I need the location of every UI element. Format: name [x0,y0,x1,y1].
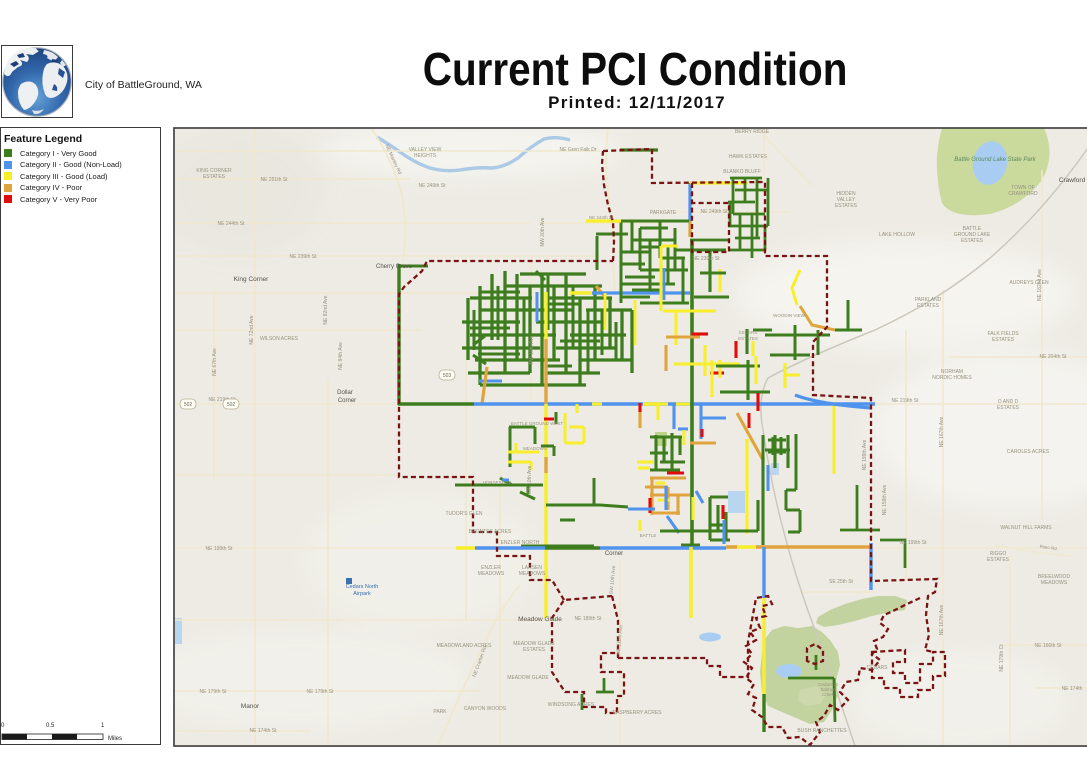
svg-text:Cherry Grove: Cherry Grove [376,264,413,270]
svg-text:ENZLER NORTH: ENZLER NORTH [501,540,540,546]
svg-text:NE 244th St: NE 244th St [589,215,614,220]
svg-text:ESTATES: ESTATES [738,336,758,341]
svg-text:NE 179th St: NE 179th St [200,689,228,695]
svg-text:NE 251th St: NE 251th St [261,177,289,183]
svg-text:NE 199th St: NE 199th St [206,546,234,552]
svg-text:NE 179th Ct: NE 179th Ct [999,644,1005,672]
svg-text:NE 159th Ave: NE 159th Ave [882,485,888,516]
svg-text:Meadow Glade: Meadow Glade [518,616,562,623]
svg-text:NE 249th St: NE 249th St [701,209,729,215]
svg-text:CAROLES ACRES: CAROLES ACRES [1007,449,1050,455]
svg-text:CEDARS: CEDARS [739,330,758,335]
svg-text:NE 182nd Ave: NE 182nd Ave [1037,269,1043,301]
svg-text:NE 67th Ave: NE 67th Ave [212,348,218,376]
svg-text:502: 502 [184,402,193,408]
svg-text:MEADOW GLADE: MEADOW GLADE [507,675,549,681]
svg-text:NE Gren Falk Dr: NE Gren Falk Dr [560,147,597,153]
svg-text:Miles: Miles [108,736,122,742]
svg-text:NE 244th St: NE 244th St [218,221,246,227]
svg-text:0.5: 0.5 [46,723,55,729]
svg-text:BLANKO BLUFF: BLANKO BLUFF [723,169,761,175]
svg-text:Airpark: Airpark [353,591,371,597]
svg-text:Manor: Manor [241,703,260,710]
svg-text:NE 82nd Ave: NE 82nd Ave [323,295,329,324]
svg-text:1: 1 [101,723,105,729]
svg-text:ESTATES: ESTATES [992,337,1015,343]
svg-text:CRAWFORD: CRAWFORD [1008,191,1038,197]
svg-text:NE 199th Ave: NE 199th Ave [862,440,868,471]
svg-text:LAKE HOLLOW: LAKE HOLLOW [879,232,915,238]
svg-text:PARKGATE: PARKGATE [650,210,677,216]
svg-text:MEADOWS: MEADOWS [478,571,505,577]
svg-text:MEADOWS: MEADOWS [523,446,547,451]
svg-text:NE 179th St: NE 179th St [307,689,335,695]
svg-text:ESTATES: ESTATES [917,303,940,309]
svg-text:NE 84th Ave: NE 84th Ave [338,342,344,370]
svg-text:HEIGHTS: HEIGHTS [414,153,437,159]
svg-text:WILSON ACRES: WILSON ACRES [260,336,299,342]
svg-text:NE 72nd Ave: NE 72nd Ave [249,315,255,344]
svg-text:ESTATES: ESTATES [987,557,1010,563]
svg-text:NE 219th St: NE 219th St [892,398,920,404]
svg-text:MEADOWS: MEADOWS [519,571,546,577]
svg-text:WALNUT HILL FARMS: WALNUT HILL FARMS [1000,525,1052,531]
svg-text:NE 249th St: NE 249th St [419,183,447,189]
svg-text:HAWK ESTATES: HAWK ESTATES [729,154,768,160]
svg-text:NE 174th: NE 174th [1062,686,1083,692]
svg-text:NE 189th St: NE 189th St [575,616,603,622]
svg-text:Crawford: Crawford [1059,177,1086,184]
svg-text:BUSH RANCHETTES: BUSH RANCHETTES [797,728,847,734]
svg-text:NE 204th St: NE 204th St [1040,354,1068,360]
svg-text:NE 199th St: NE 199th St [900,540,928,546]
svg-text:NE 167th Ave: NE 167th Ave [939,417,945,448]
svg-text:PARK: PARK [433,709,447,715]
svg-text:ESTATES: ESTATES [203,174,226,180]
svg-text:AUDREYS GLEN: AUDREYS GLEN [1009,280,1049,286]
svg-text:BATTLE: BATTLE [640,533,657,538]
svg-text:NE 167th Ave: NE 167th Ave [939,605,945,636]
svg-text:ESTATES: ESTATES [997,405,1020,411]
svg-text:MEADOWS: MEADOWS [1041,580,1068,586]
svg-text:WINDSONG ACRES: WINDSONG ACRES [548,702,595,708]
svg-text:CEDARS: CEDARS [867,665,889,671]
svg-text:NE 166th St: NE 166th St [1035,643,1063,649]
svg-text:502: 502 [227,402,236,408]
svg-text:NORDIC HOMES: NORDIC HOMES [932,375,972,381]
svg-text:SE 25th St: SE 25th St [829,579,854,585]
svg-text:NE 174th St: NE 174th St [250,728,278,734]
svg-text:BERRY RIDGE: BERRY RIDGE [735,129,770,135]
svg-text:Cedars North: Cedars North [346,584,379,590]
svg-text:NW 10th Ave: NW 10th Ave [529,335,535,364]
svg-text:RASPBERRY ACRES: RASPBERRY ACRES [612,710,662,716]
svg-text:503: 503 [443,373,452,379]
svg-text:BATTLE GROUND WEST: BATTLE GROUND WEST [511,421,563,426]
svg-text:NE 239th St: NE 239th St [290,254,318,260]
svg-text:ESTATES: ESTATES [835,203,858,209]
svg-text:0: 0 [1,723,5,729]
svg-text:TUDOR'S GLEN: TUDOR'S GLEN [445,511,482,517]
svg-text:King Corner: King Corner [234,276,270,283]
svg-text:HORSESHOE: HORSESHOE [483,480,512,485]
svg-text:Corner: Corner [605,551,623,557]
svg-text:Dollar: Dollar [337,390,353,396]
svg-text:ESTATES: ESTATES [961,238,984,244]
svg-text:Creek: Creek [822,692,835,697]
svg-text:ESTATES: ESTATES [523,647,546,653]
svg-text:SW 10th Ave: SW 10th Ave [527,465,533,494]
svg-text:Corner: Corner [338,398,356,404]
svg-text:WOODIN VIEW: WOODIN VIEW [773,313,806,318]
svg-text:NE 239th St: NE 239th St [693,256,721,262]
svg-text:Battle Ground Lake State Park: Battle Ground Lake State Park [954,157,1036,163]
svg-text:CANYON WOODS: CANYON WOODS [464,706,507,712]
svg-text:BRONTES ACRES: BRONTES ACRES [469,529,512,535]
svg-text:NW 20th Ave: NW 20th Ave [540,217,546,246]
